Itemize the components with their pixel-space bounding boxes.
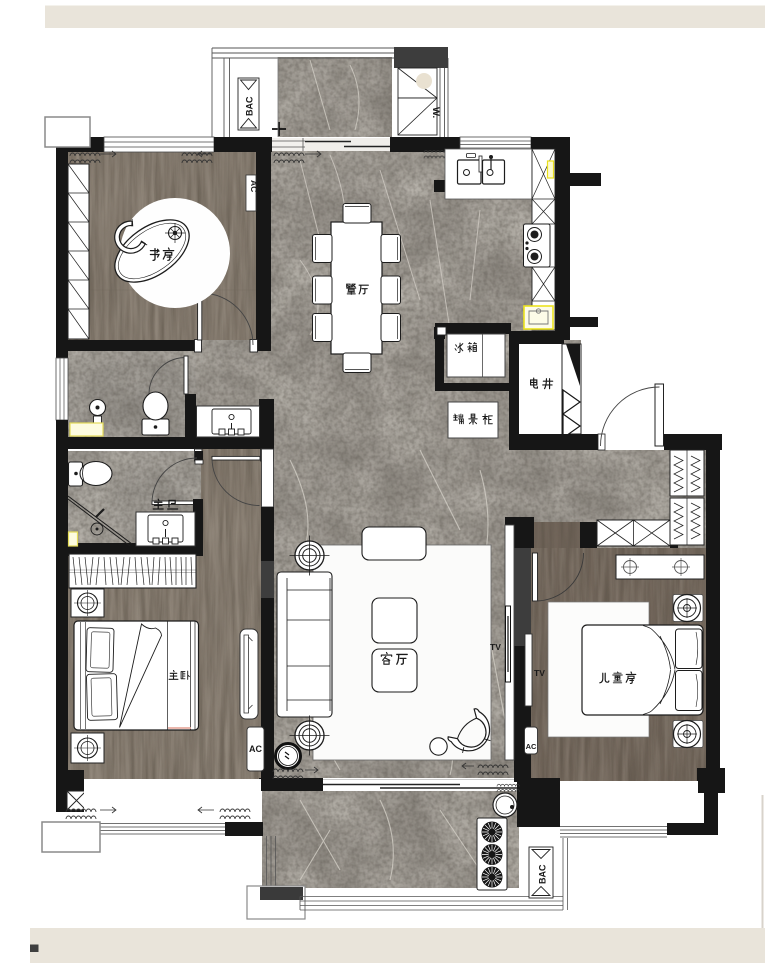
svg-text:BAC: BAC — [245, 96, 255, 116]
svg-text:AC: AC — [249, 744, 262, 754]
svg-text:AC: AC — [526, 742, 537, 751]
svg-text:W.: W. — [430, 107, 441, 118]
svg-text:AC: AC — [249, 180, 259, 192]
svg-text:BAC: BAC — [538, 864, 548, 884]
svg-text:TV: TV — [534, 668, 545, 678]
svg-text:TV: TV — [490, 642, 501, 652]
